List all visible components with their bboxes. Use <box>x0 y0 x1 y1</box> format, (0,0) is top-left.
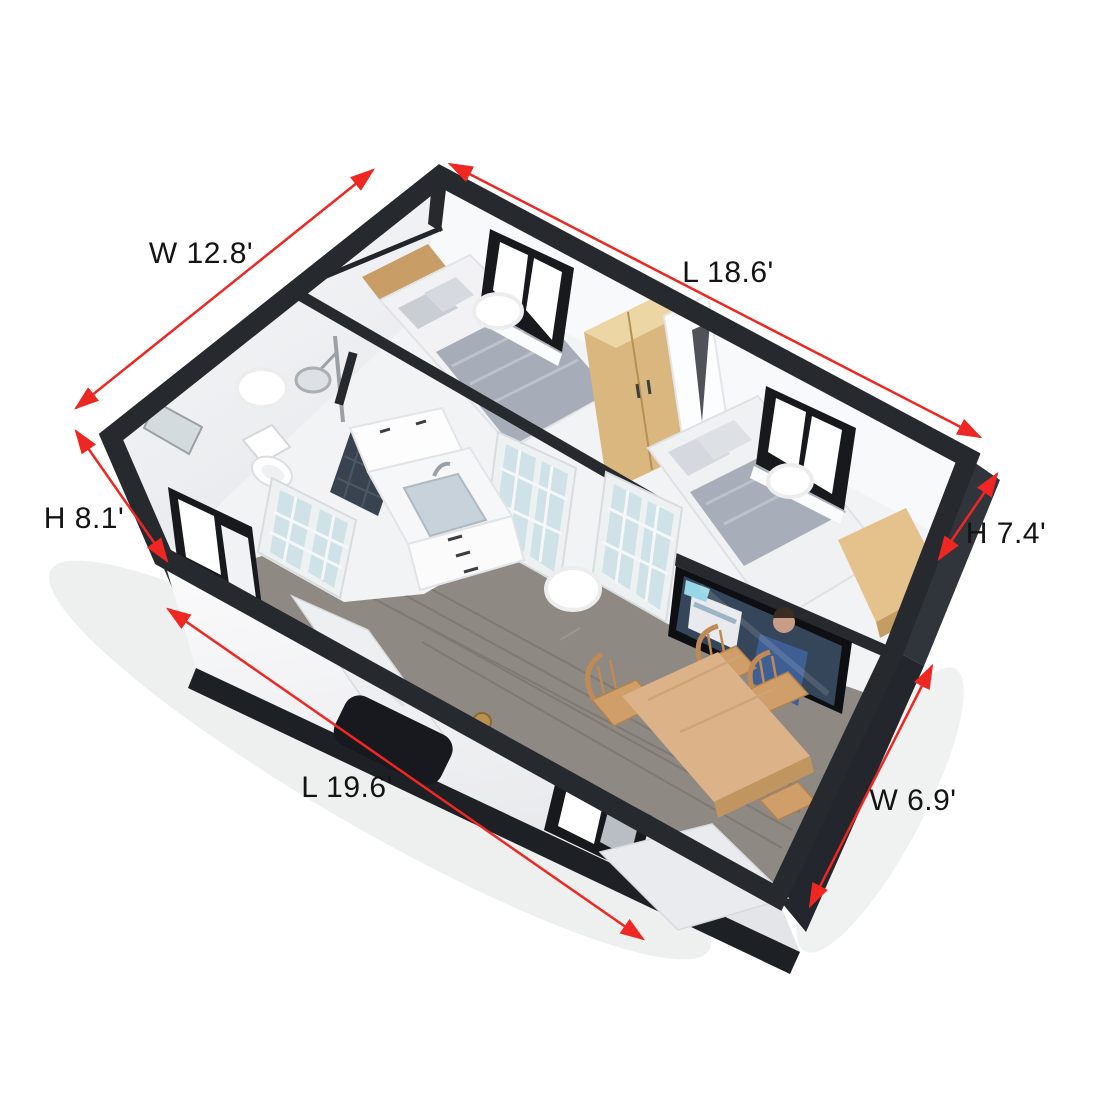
ceiling-light-bathroom <box>237 369 287 407</box>
dimension-label-height-right: H 7.4' <box>966 517 1046 550</box>
wardrobe-handle <box>637 384 639 398</box>
shower-head <box>296 368 330 392</box>
ceiling-light-bedroom-2 <box>768 465 812 497</box>
wardrobe-handle <box>648 380 650 394</box>
dimension-label-width-bottom: W 6.9' <box>869 784 956 817</box>
dimension-label-length-top: L 18.6' <box>682 256 774 289</box>
floor-plan-render: W 12.8' L 18.6' H 8.1' H 7.4' L 19.6' W … <box>0 0 1096 1096</box>
dimension-label-width-top: W 12.8' <box>149 237 253 270</box>
dimension-label-length-bottom: L 19.6' <box>301 771 393 804</box>
ceiling-light-bedroom-1 <box>474 294 522 328</box>
ceiling-light-hallway <box>546 568 600 610</box>
product-dimension-image: W 12.8' L 18.6' H 8.1' H 7.4' L 19.6' W … <box>0 0 1096 1096</box>
dimension-label-height-left: H 8.1' <box>44 502 124 535</box>
